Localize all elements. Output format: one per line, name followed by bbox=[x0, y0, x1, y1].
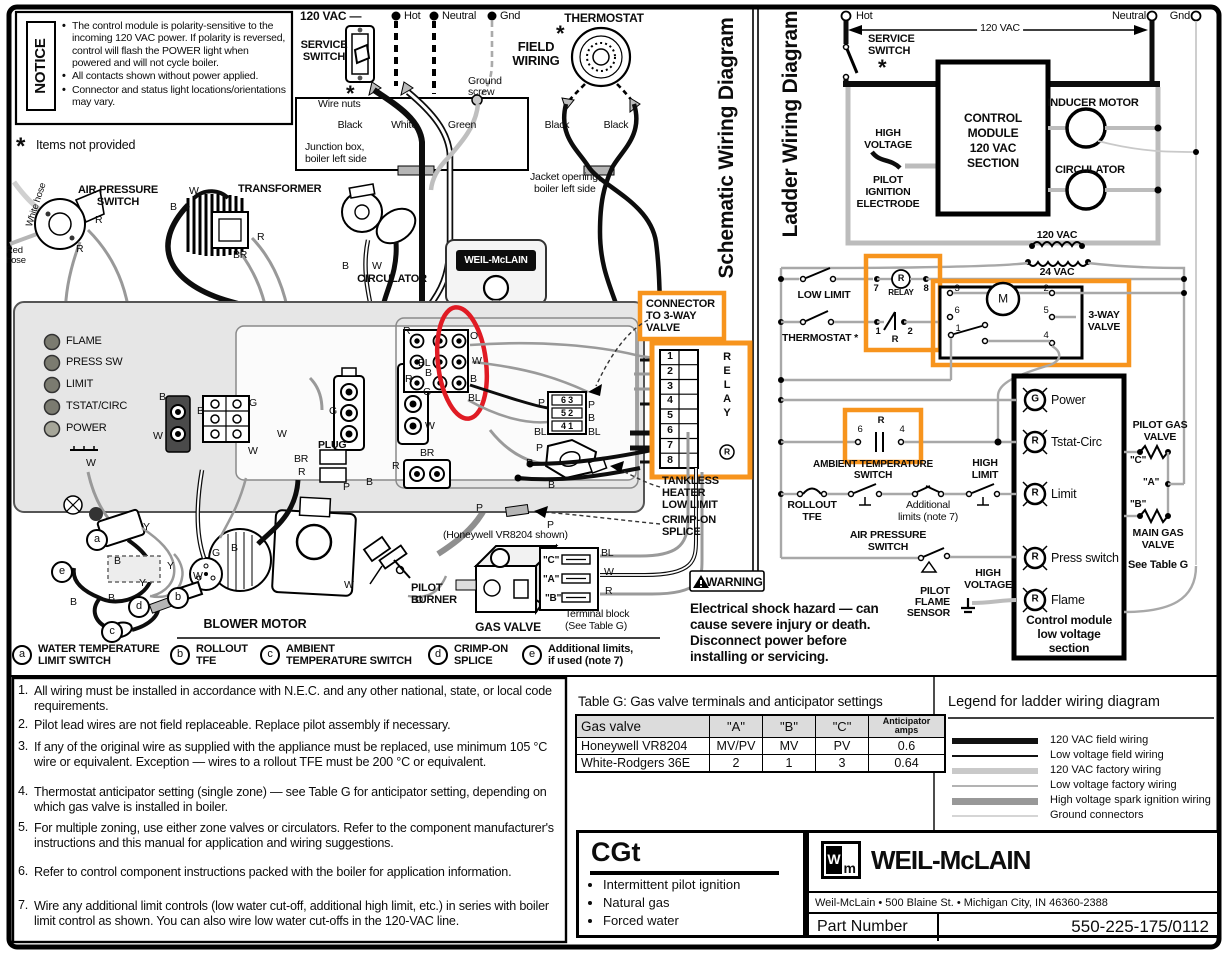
legend-entry-label: Ground connectors bbox=[1050, 809, 1144, 821]
table-cell: MV/PV bbox=[710, 737, 763, 754]
weil-mclain-logo-icon: W m bbox=[821, 841, 861, 879]
table-header-cell: "B" bbox=[763, 715, 816, 737]
table-header-cell: "A" bbox=[710, 715, 763, 737]
terminal-block bbox=[540, 548, 598, 610]
table-cell: White-Rodgers 36E bbox=[576, 754, 710, 772]
part-number-label: Part Number bbox=[817, 918, 908, 936]
service-switch-icon bbox=[346, 26, 374, 82]
wiring-diagram-page: Schematic Wiring DiagramLadder Wiring Di… bbox=[0, 0, 1228, 956]
table-cell: Honeywell VR8204 bbox=[576, 737, 710, 754]
model-name: CGt bbox=[591, 837, 641, 868]
table-row: Honeywell VR8204MV/PVMVPV0.6 bbox=[576, 737, 945, 754]
table-header-cell: "C" bbox=[816, 715, 869, 737]
manufacturer-box: W m WEIL-McLAIN Weil-McLain • 500 Blaine… bbox=[806, 830, 1220, 938]
table-cell: PV bbox=[816, 737, 869, 754]
table-cell: 3 bbox=[816, 754, 869, 772]
gas-valve-table: Gas valve"A""B""C"Anticipator ampsHoneyw… bbox=[575, 714, 946, 773]
logo-w: W bbox=[826, 846, 842, 874]
logo-m: m bbox=[844, 860, 856, 876]
legend-entry-label: 120 VAC field wiring bbox=[1050, 734, 1148, 746]
legend-entry-label: Low voltage factory wiring bbox=[1050, 779, 1177, 791]
legend-line-swatch bbox=[952, 815, 1038, 817]
gas-valve-terminals-table: Gas valve"A""B""C"Anticipator ampsHoneyw… bbox=[575, 714, 946, 773]
feature-item: Natural gas bbox=[603, 895, 740, 910]
ladder-legend: Legend for ladder wiring diagram 120 VAC… bbox=[948, 694, 1220, 710]
model-features: Intermittent pilot ignition Natural gas … bbox=[589, 877, 740, 931]
table-cell: MV bbox=[763, 737, 816, 754]
divider bbox=[937, 914, 939, 941]
divider bbox=[809, 912, 1217, 914]
legend-line-swatch bbox=[952, 785, 1038, 788]
gas-valve-table-section: Table G: Gas valve terminals and anticip… bbox=[575, 714, 946, 773]
diagram-linework bbox=[0, 0, 1228, 956]
table-cell: 0.64 bbox=[869, 754, 946, 772]
table-cell: 0.6 bbox=[869, 737, 946, 754]
legend-line-swatch bbox=[952, 755, 1038, 758]
feature-item: Intermittent pilot ignition bbox=[603, 877, 740, 892]
legend-line-swatch bbox=[952, 798, 1038, 805]
legend-entry-label: 120 VAC factory wiring bbox=[1050, 764, 1161, 776]
manufacturer-address: Weil-McLain • 500 Blaine St. • Michigan … bbox=[815, 897, 1108, 909]
manufacturer-name: WEIL-McLAIN bbox=[871, 845, 1030, 876]
pilot-burner-icon bbox=[364, 537, 446, 597]
legend-title: Legend for ladder wiring diagram bbox=[948, 694, 1220, 710]
ladder-low-voltage bbox=[778, 256, 1196, 658]
model-rule bbox=[590, 871, 779, 875]
legend-entry-label: Low voltage field wiring bbox=[1050, 749, 1164, 761]
table-row: White-Rodgers 36E2130.64 bbox=[576, 754, 945, 772]
part-number-value: 550-225-175/0112 bbox=[1071, 917, 1209, 937]
table-g-title: Table G: Gas valve terminals and anticip… bbox=[578, 695, 883, 709]
table-cell: 1 bbox=[763, 754, 816, 772]
table-header-cell: Gas valve bbox=[576, 715, 710, 737]
legend-line-swatch bbox=[952, 768, 1038, 774]
feature-item: Forced water bbox=[603, 913, 740, 928]
six-pin-plug bbox=[548, 392, 586, 434]
legend-line-swatch bbox=[952, 738, 1038, 744]
legend-entry-label: High voltage spark ignition wiring bbox=[1050, 794, 1211, 806]
model-box: CGt Intermittent pilot ignition Natural … bbox=[576, 830, 806, 938]
warning-badge-box bbox=[690, 571, 764, 591]
table-header-cell: Anticipator amps bbox=[869, 715, 946, 737]
table-cell: 2 bbox=[710, 754, 763, 772]
divider bbox=[809, 891, 1217, 893]
